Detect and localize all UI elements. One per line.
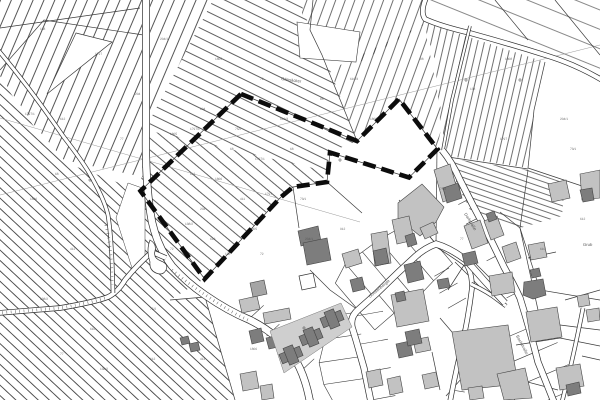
svg-text:1806: 1806 <box>215 177 222 181</box>
svg-text:73/1: 73/1 <box>570 147 576 151</box>
svg-text:138/2: 138/2 <box>100 367 108 371</box>
svg-text:411: 411 <box>240 197 245 201</box>
svg-text:912: 912 <box>340 227 346 231</box>
svg-text:75/2: 75/2 <box>440 187 446 191</box>
svg-text:75/2: 75/2 <box>150 307 156 311</box>
svg-text:73/1: 73/1 <box>300 197 306 201</box>
svg-text:610: 610 <box>210 237 216 241</box>
svg-text:204/1: 204/1 <box>560 117 568 121</box>
svg-text:138/2: 138/2 <box>185 222 193 226</box>
svg-text:1806: 1806 <box>250 347 257 351</box>
svg-text:612: 612 <box>60 117 66 121</box>
svg-text:138: 138 <box>40 27 46 31</box>
svg-text:68: 68 <box>55 172 59 176</box>
svg-text:610/3: 610/3 <box>280 117 288 121</box>
svg-text:68: 68 <box>230 147 234 151</box>
svg-text:612: 612 <box>150 357 156 361</box>
svg-text:88: 88 <box>420 57 424 61</box>
svg-text:75/2: 75/2 <box>235 127 241 131</box>
svg-text:1808: 1808 <box>505 57 512 61</box>
svg-text:77: 77 <box>120 137 124 141</box>
svg-text:138: 138 <box>470 87 476 91</box>
svg-text:204: 204 <box>200 207 206 211</box>
svg-text:1797: 1797 <box>95 52 102 56</box>
svg-text:204/1: 204/1 <box>160 37 168 41</box>
svg-text:610/3: 610/3 <box>350 77 358 81</box>
svg-text:1797: 1797 <box>265 192 272 196</box>
svg-text:204/1: 204/1 <box>305 237 313 241</box>
svg-text:912: 912 <box>190 172 196 176</box>
svg-text:Grub: Grub <box>583 242 593 247</box>
svg-text:77: 77 <box>60 352 64 356</box>
svg-text:1805: 1805 <box>170 132 177 136</box>
svg-text:610: 610 <box>90 327 96 331</box>
svg-text:1805: 1805 <box>215 57 222 61</box>
svg-text:411: 411 <box>200 357 205 361</box>
svg-text:1797: 1797 <box>500 137 507 141</box>
svg-text:411: 411 <box>70 247 75 251</box>
svg-text:204: 204 <box>200 107 206 111</box>
svg-text:72: 72 <box>260 252 264 256</box>
svg-text:88: 88 <box>320 97 324 101</box>
svg-text:138/2: 138/2 <box>40 297 48 301</box>
svg-text:72: 72 <box>260 77 264 81</box>
svg-text:1806: 1806 <box>30 197 37 201</box>
svg-text:204: 204 <box>135 92 141 96</box>
svg-text:612: 612 <box>580 217 586 221</box>
svg-text:1797/1: 1797/1 <box>190 127 200 131</box>
svg-text:1797/1: 1797/1 <box>25 112 35 116</box>
svg-text:1797/1: 1797/1 <box>255 157 265 161</box>
svg-text:77: 77 <box>460 237 464 241</box>
svg-text:610: 610 <box>540 247 546 251</box>
svg-text:68: 68 <box>290 147 294 151</box>
svg-text:72: 72 <box>170 247 174 251</box>
